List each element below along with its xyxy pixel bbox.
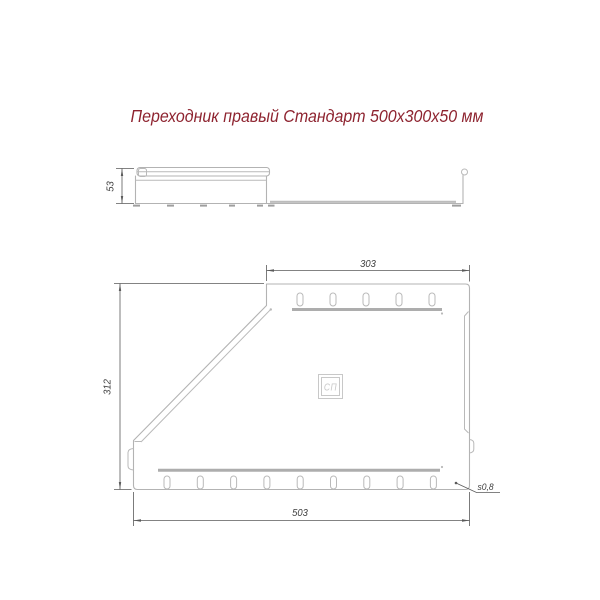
top-slot-row <box>297 293 435 306</box>
oval-slot <box>264 476 270 489</box>
dimension-top-width: 303 <box>267 259 470 282</box>
drawing-title: Переходник правый Стандарт 500х300х50 мм <box>131 106 485 126</box>
oval-slot <box>297 293 303 306</box>
left-edge-tab <box>128 449 134 471</box>
oval-slot <box>164 476 170 489</box>
oval-slot <box>297 476 303 489</box>
rivet-dot-bottom <box>441 466 443 468</box>
brand-logo-text: СП <box>324 382 337 393</box>
side-right-hook <box>462 169 468 175</box>
dim-label-thickness: s0,8 <box>478 482 494 493</box>
drawing-canvas: Переходник правый Стандарт 500х300х50 мм <box>0 0 600 600</box>
dim-label-303: 303 <box>360 259 376 271</box>
bottom-slot-row <box>164 476 436 489</box>
side-clip-tab <box>139 169 147 177</box>
dimension-thickness: s0,8 <box>455 482 500 493</box>
dimension-side-height: 53 <box>105 169 134 204</box>
oval-slot <box>197 476 203 489</box>
dim-label-503: 503 <box>292 508 308 520</box>
right-edge-tab <box>470 440 474 454</box>
top-view: СП 303 312 <box>102 259 500 526</box>
oval-slot <box>364 476 370 489</box>
oval-slot <box>396 293 402 306</box>
dimension-bottom-width: 503 <box>134 492 470 526</box>
dim-label-312: 312 <box>102 379 114 395</box>
rivet-dot-top <box>441 312 443 314</box>
diagonal-bend-dot <box>270 308 272 310</box>
diagonal-bend-line <box>141 309 271 442</box>
plate-outline <box>134 284 470 490</box>
side-view: 53 <box>105 168 467 206</box>
brand-logo: СП <box>319 375 343 399</box>
oval-slot <box>363 293 369 306</box>
oval-slot <box>397 476 403 489</box>
dim-label-53: 53 <box>105 181 117 192</box>
oval-slot <box>429 293 435 306</box>
oval-slot <box>430 476 436 489</box>
dimension-height: 312 <box>102 284 264 490</box>
right-flange-line <box>465 312 469 434</box>
technical-drawing-page: Переходник правый Стандарт 500х300х50 мм <box>0 0 600 600</box>
oval-slot <box>231 476 237 489</box>
oval-slot <box>331 476 337 489</box>
oval-slot <box>330 293 336 306</box>
